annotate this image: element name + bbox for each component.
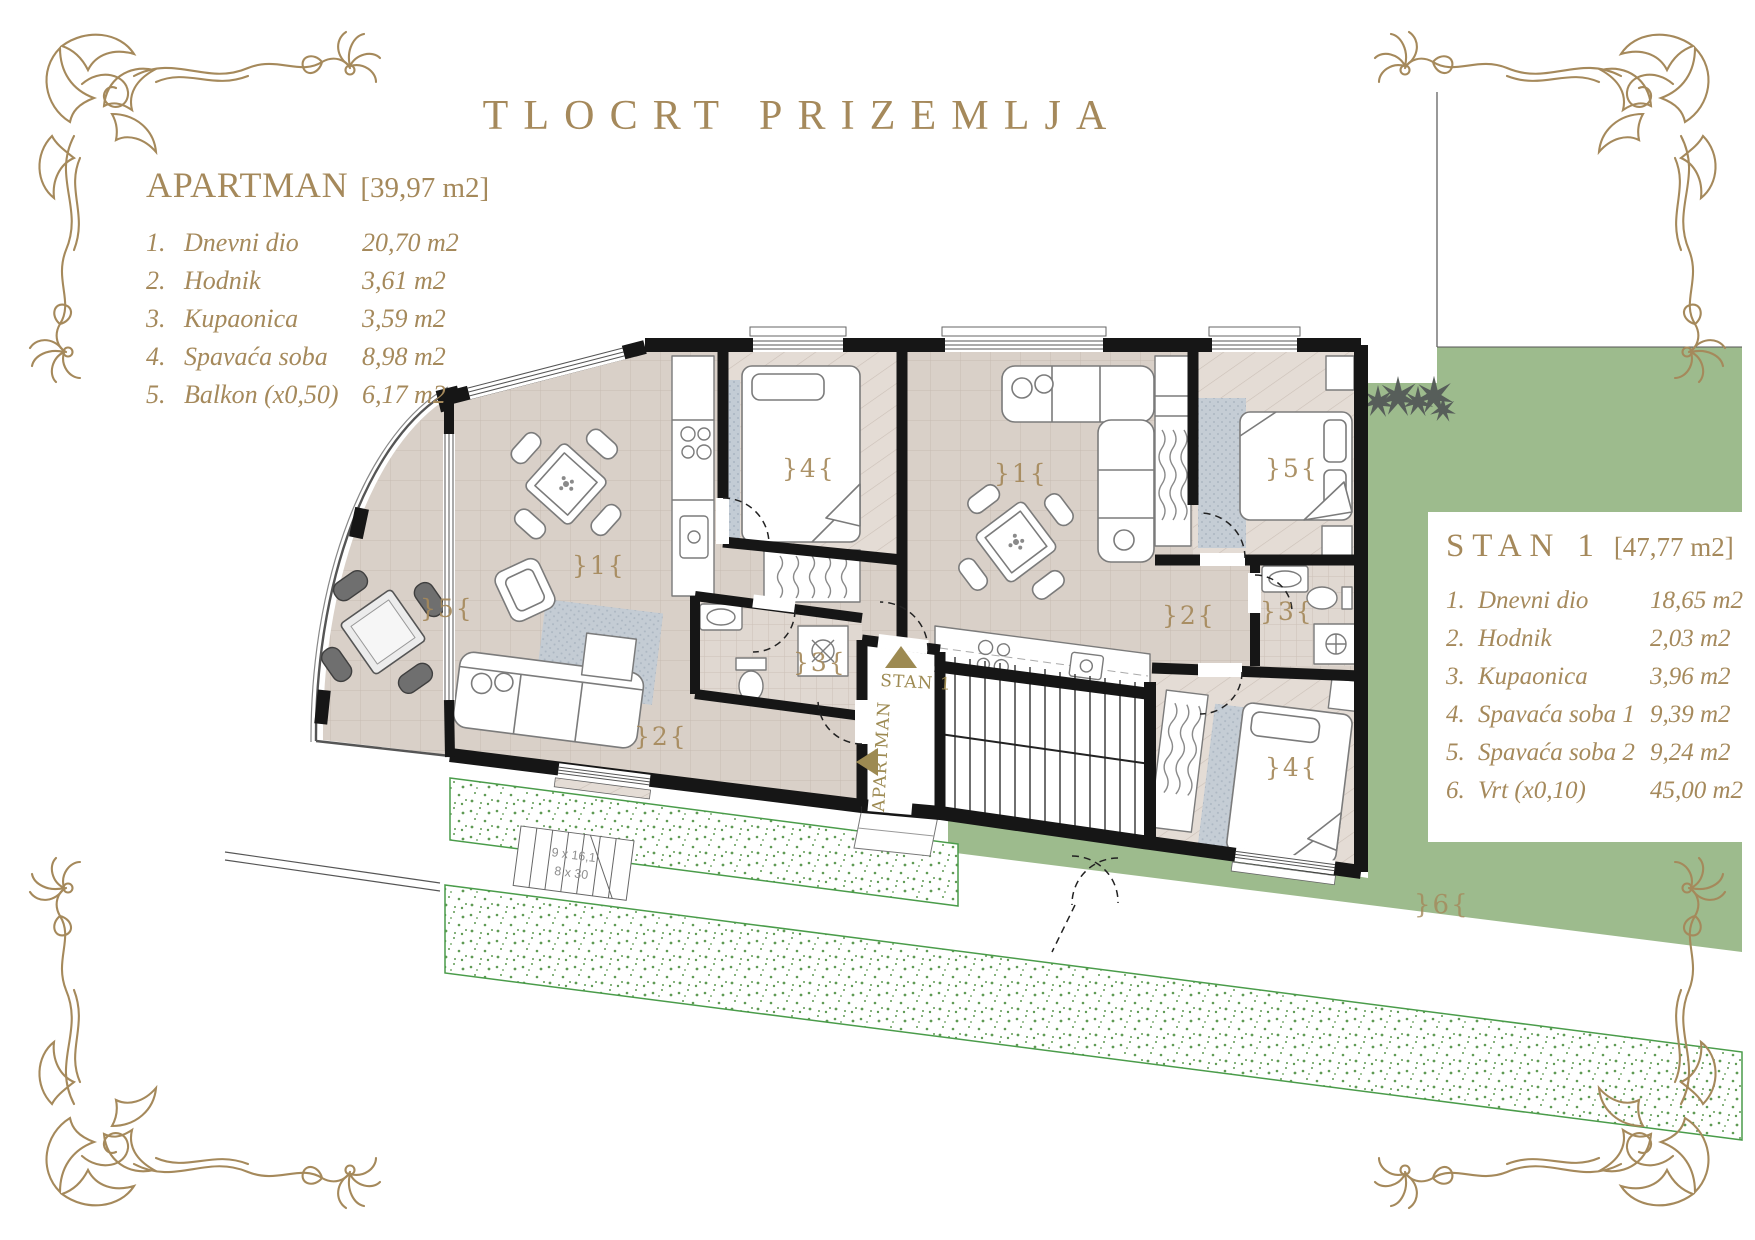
label-stan1-bath: }3{ — [1260, 597, 1314, 626]
stan1-nightstand-b — [1322, 526, 1352, 556]
label-stan1-living: }1{ — [994, 459, 1048, 488]
stan1-legend-area: [47,77 m2] — [1614, 532, 1734, 563]
legend-row: 3.Kupaonica3,96 m2 — [1446, 663, 1750, 701]
apartman-legend: APARTMAN [39,97 m2] 1.Dnevni dio20,70 m2… — [146, 164, 489, 418]
label-apartman-hall: }2{ — [634, 722, 688, 751]
label-stan1-hall: }2{ — [1162, 601, 1216, 630]
legend-row: 1.Dnevni dio20,70 m2 — [146, 228, 489, 266]
stan1-entry-label: STAN 1 — [880, 671, 952, 695]
legend-row: 4.Spavaća soba 19,39 m2 — [1446, 701, 1750, 739]
legend-row: 1.Dnevni dio18,65 m2 — [1446, 587, 1750, 625]
page-title: TLOCRT PRIZEMLJA — [483, 92, 1122, 140]
legend-row: 5.Spavaća soba 29,24 m2 — [1446, 739, 1750, 777]
label-apartman-balcony: }5{ — [420, 594, 474, 623]
balcony-floor — [311, 386, 462, 756]
ornament-top-right-icon — [1375, 32, 1725, 382]
legend-row: 6.Vrt (x0,10)45,00 m2 — [1446, 777, 1750, 815]
apartman-legend-area: [39,97 m2] — [360, 172, 489, 205]
apartman-kitchen — [672, 356, 714, 596]
stan1-legend-name: STAN 1 — [1446, 528, 1602, 565]
label-stan1-garden: }6{ — [1414, 890, 1470, 920]
label-stan1-bedroom1: }4{ — [1265, 753, 1319, 782]
label-apartman-living: }1{ — [572, 551, 626, 580]
legend-row: 2.Hodnik2,03 m2 — [1446, 625, 1750, 663]
legend-row: 3.Kupaonica3,59 m2 — [146, 304, 489, 342]
stan1-wardrobe-column — [1155, 356, 1191, 546]
ornament-bottom-left-icon — [30, 858, 380, 1208]
legend-row: 5.Balkon (x0,50)6,17 m2 — [146, 380, 489, 418]
stan1-legend: STAN 1 [47,77 m2] 1.Dnevni dio18,65 m2 2… — [1428, 512, 1750, 842]
label-stan1-bedroom2: }5{ — [1265, 454, 1319, 483]
label-apartman-bath: }3{ — [793, 648, 847, 677]
legend-row: 4.Spavaća soba8,98 m2 — [146, 342, 489, 380]
legend-row: 2.Hodnik3,61 m2 — [146, 266, 489, 304]
stan1-bed1 — [1226, 702, 1353, 864]
label-apartman-bedroom: }4{ — [782, 454, 836, 483]
stan1-bedroom2-rug — [1198, 398, 1246, 548]
apartman-legend-name: APARTMAN — [146, 164, 348, 206]
apartman-coffee-table — [582, 633, 637, 681]
floor-plan-page: 9 x 16,1 8 x 30 — [0, 0, 1755, 1240]
stan1-nightstand-a — [1326, 356, 1354, 390]
